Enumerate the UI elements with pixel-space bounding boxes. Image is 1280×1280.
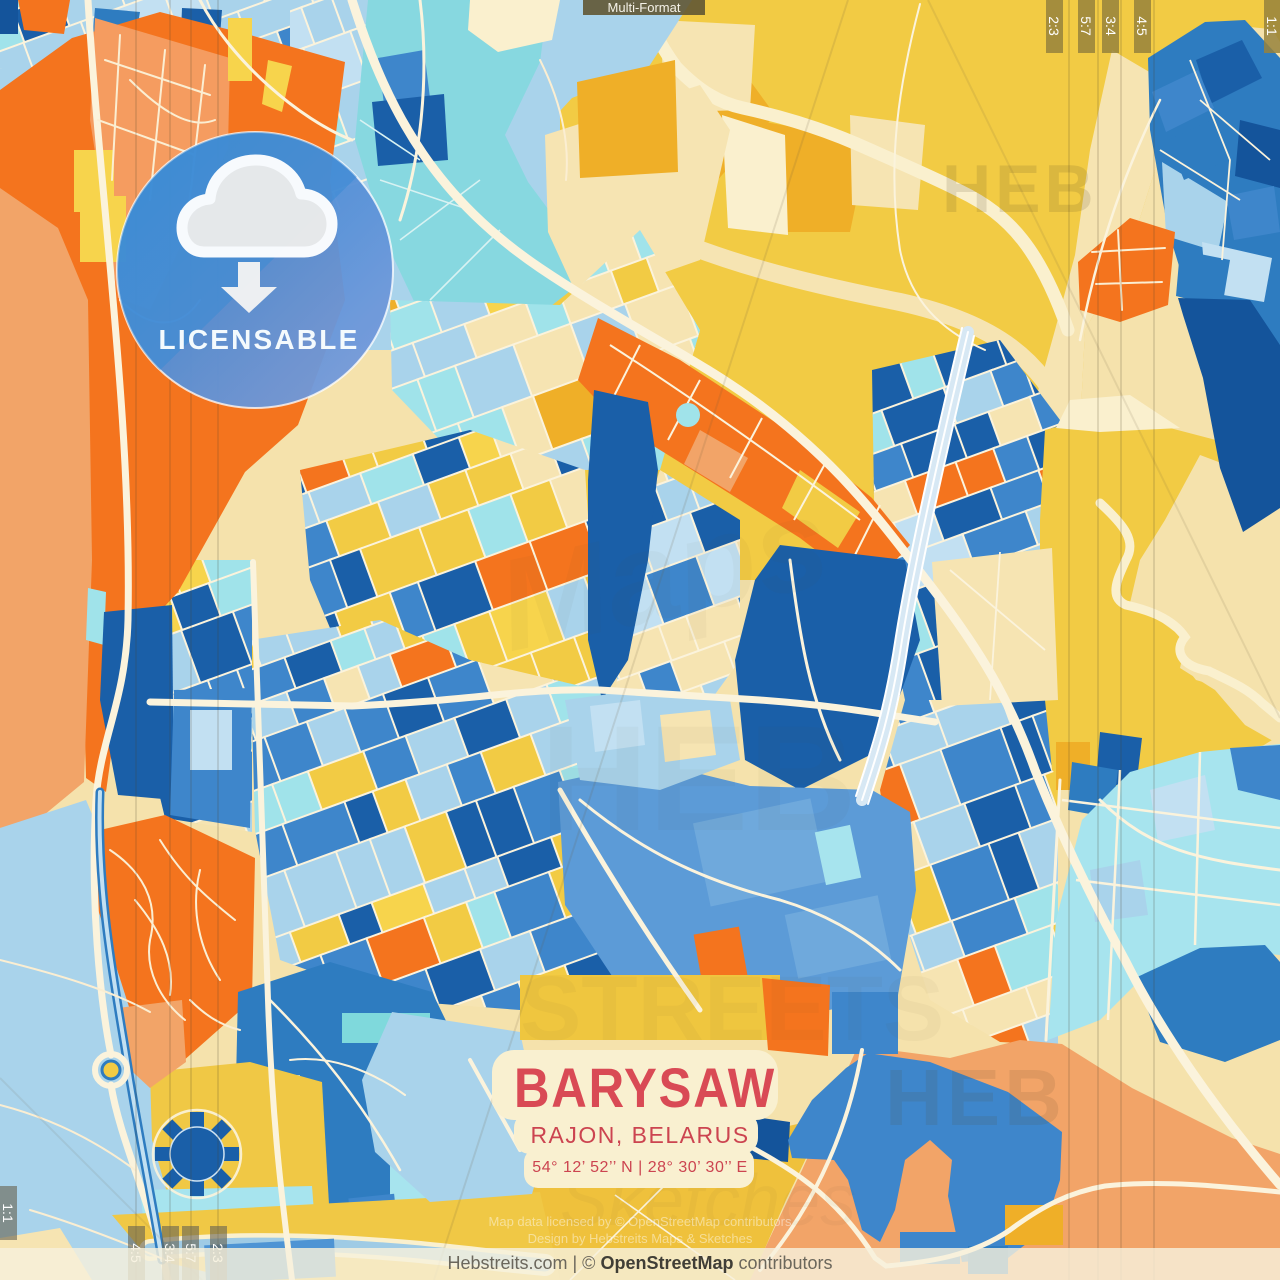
svg-text:4:5: 4:5 [1134,16,1150,36]
svg-text:BARYSAW: BARYSAW [514,1056,776,1119]
svg-text:HEB: HEB [885,1053,1066,1142]
svg-text:3:4: 3:4 [1103,16,1119,36]
svg-text:Hebstreits.com | © OpenStreetM: Hebstreits.com | © OpenStreetMap contrib… [447,1253,832,1273]
svg-text:RAJON, BELARUS: RAJON, BELARUS [530,1122,749,1148]
svg-text:STREETS: STREETS [520,958,944,1060]
svg-text:54° 12’ 52’’ N | 28° 30’: 54° 12’ 52’’ N | 28° 30’ 30’’ E [532,1159,747,1176]
svg-text:Design by Hebstreits Maps & Sk: Design by Hebstreits Maps & Sketches [528,1231,753,1246]
svg-text:Multi-Format: Multi-Format [608,0,681,15]
svg-text:Map data licensed by © OpenStr: Map data licensed by © OpenStreetMap con… [489,1214,792,1229]
svg-text:LICENSABLE: LICENSABLE [159,324,360,355]
svg-text:2:3: 2:3 [1046,16,1062,36]
svg-text:1:1: 1:1 [0,1203,16,1223]
svg-text:1:1: 1:1 [1264,16,1280,36]
svg-text:5:7: 5:7 [1078,16,1094,36]
svg-text:HEB: HEB [540,694,857,862]
